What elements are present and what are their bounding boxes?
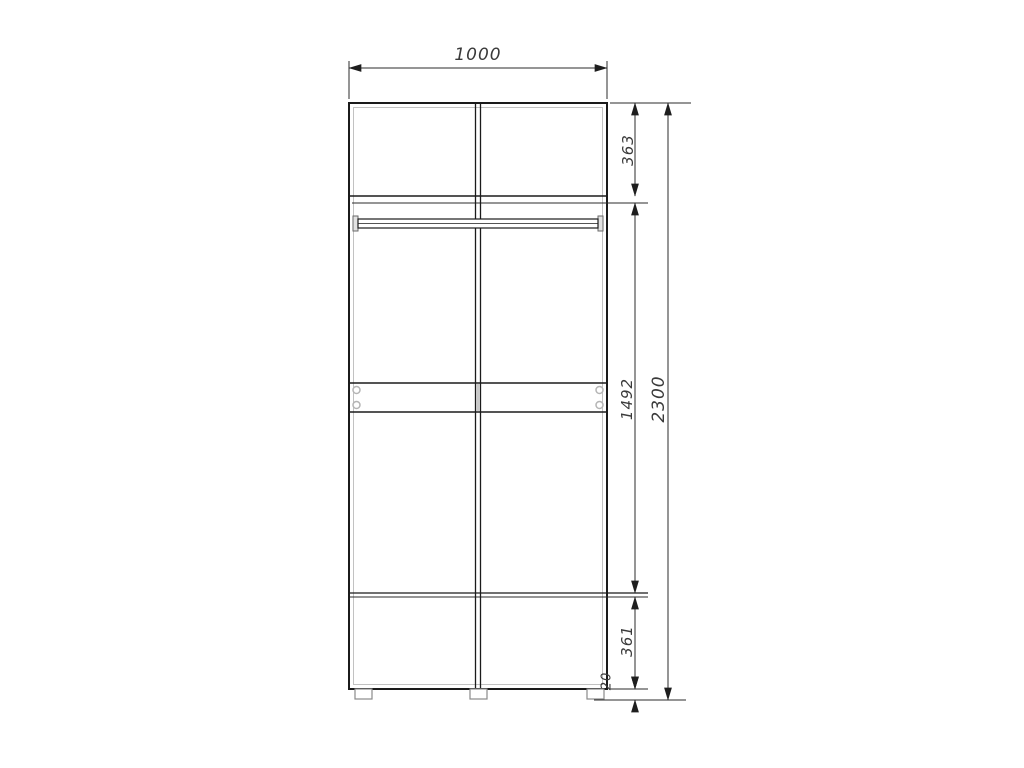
plinth-gap-label: 20 xyxy=(600,672,615,691)
handle-left-upper xyxy=(353,387,360,394)
middle-section-label: 1492 xyxy=(618,378,636,420)
legs xyxy=(355,689,604,699)
right-extension-lines xyxy=(594,103,691,700)
handle-right-upper xyxy=(596,387,603,394)
top-section-label: 363 xyxy=(619,134,637,166)
total-height-label: 2300 xyxy=(649,375,669,422)
handle-right-lower xyxy=(596,402,603,409)
width-dim-label: 1000 xyxy=(454,45,501,65)
drawing-page: 1000 363 1492 361 20 2300 xyxy=(0,0,1024,768)
technical-drawing-canvas: 1000 363 1492 361 20 2300 xyxy=(0,0,1024,768)
bottom-section-label: 361 xyxy=(618,625,636,657)
leg-left xyxy=(355,689,372,699)
leg-center xyxy=(470,689,487,699)
rod-bracket-right xyxy=(598,216,603,231)
dimension-width xyxy=(349,61,607,99)
center-divider-visible-carcass xyxy=(476,384,480,411)
cabinet-carcass xyxy=(349,103,648,689)
handle-left-lower xyxy=(353,402,360,409)
rod-bracket-left xyxy=(353,216,358,231)
